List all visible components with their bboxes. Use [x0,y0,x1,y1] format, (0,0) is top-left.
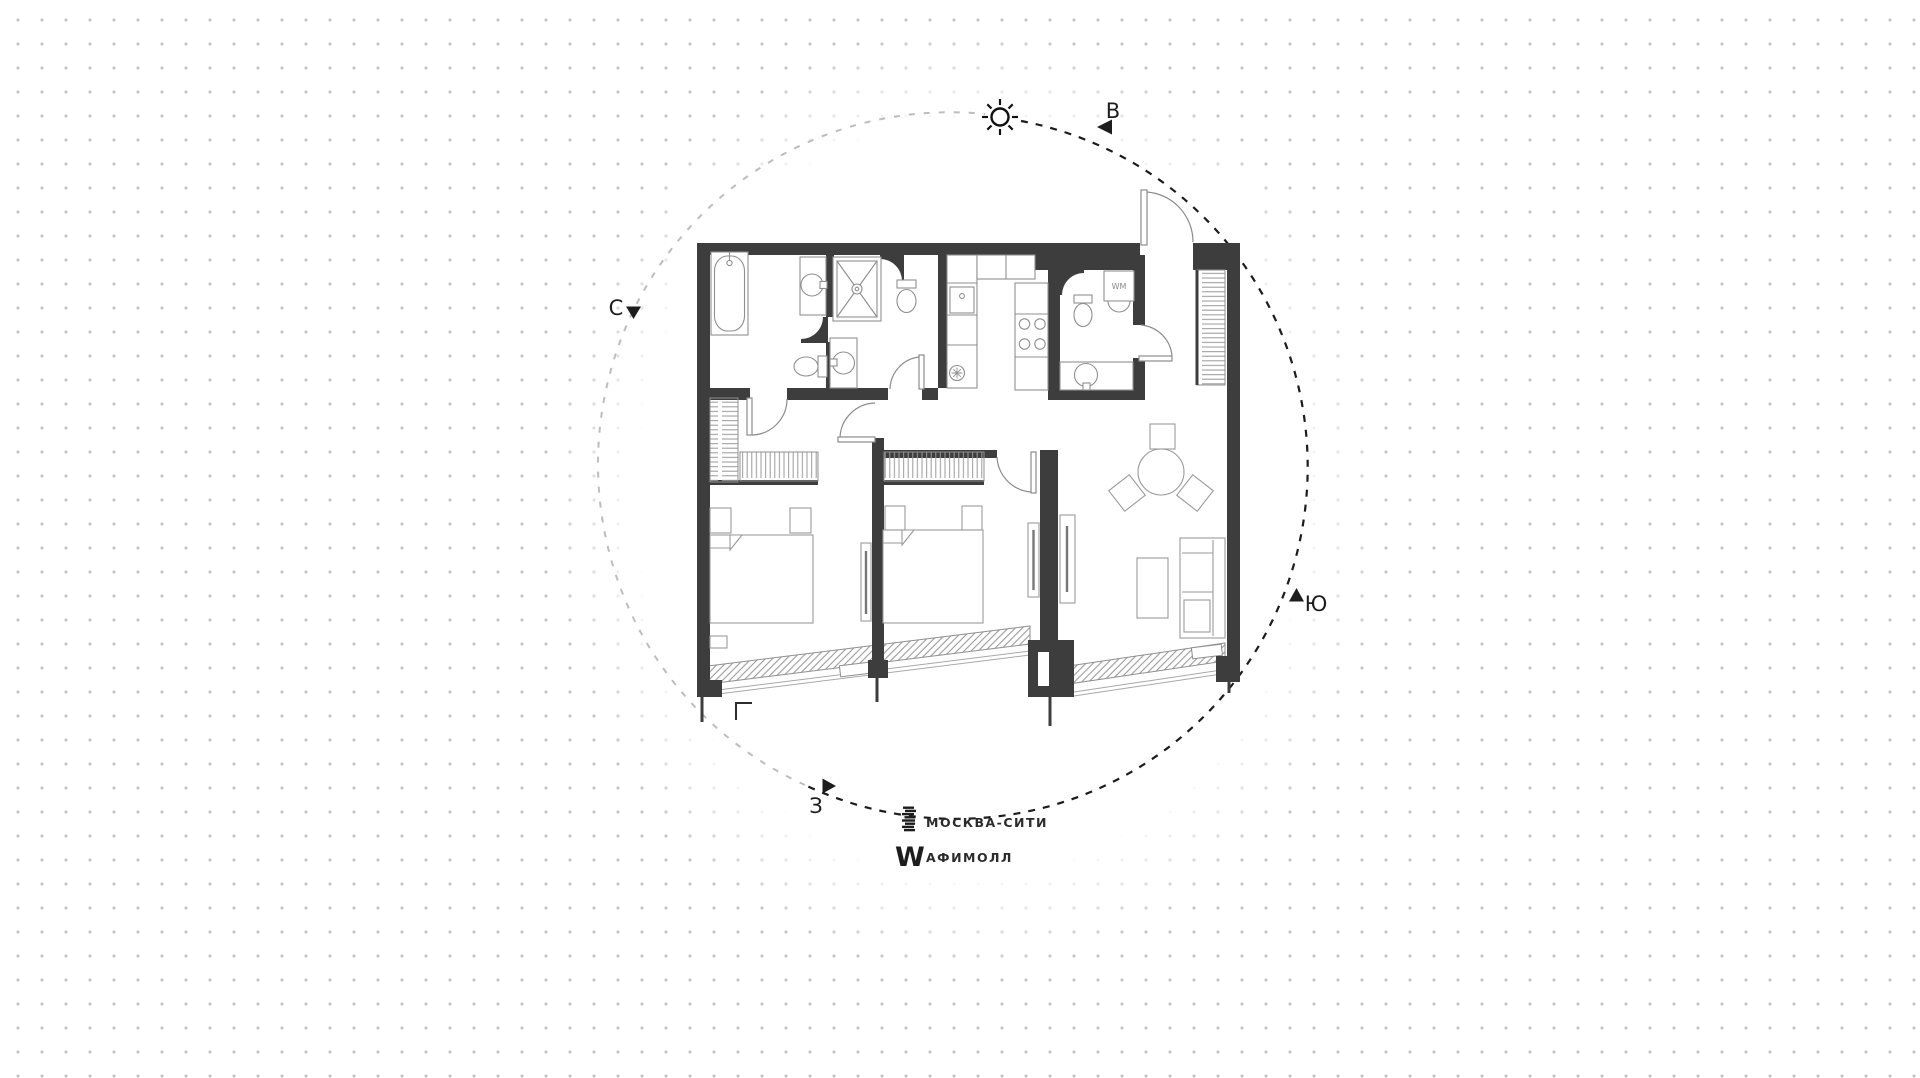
legend-label-afimall: АФИМОЛЛ [926,850,1013,865]
bedroom2-closet-band [884,452,984,481]
sink-3-faucet [1083,383,1090,390]
nightstand [962,506,982,530]
afimall-w-icon: W [895,842,925,873]
sink-2-faucet [830,359,837,366]
bedroom1-closet-column [710,398,738,482]
dining-chair [1150,424,1175,449]
stove-burner [1019,339,1029,349]
toilet-3-tank [1074,295,1092,303]
bathtub-faucet [727,260,732,265]
stove-burner [1035,339,1045,349]
washing-machine-label: WM [1112,282,1127,291]
toilet-1-tank [818,356,827,377]
sun-icon [982,99,1018,135]
entry-wardrobe [1197,270,1225,385]
bedroom1-closet-band [740,452,818,481]
dining-table [1138,449,1184,495]
floor-plan-drawing: В С Ю З [0,0,1920,1078]
kitchen-stove-unit [1015,283,1048,390]
compass-label-south: Ю [1305,592,1328,616]
compass-label-north: С [609,296,624,320]
bed-1-bench [710,636,727,648]
floor-plan-page: В С Ю З [0,0,1920,1078]
nightstand [885,506,905,530]
coffee-table [1137,558,1168,618]
compass-arrow-west [823,779,837,794]
toilet-3-bowl [1074,304,1092,327]
toilet-1-bowl [794,357,818,376]
compass-label-west: З [809,794,822,818]
moscow-city-tower-icon [902,807,916,832]
sink-1-faucet [820,282,827,289]
toilet-2-bowl [897,290,916,313]
sofa-chaise [1184,600,1210,632]
nightstand [790,508,811,533]
compass-arrow-north [626,307,641,320]
stove-burner [1019,319,1029,329]
compass-arrow-east [1097,120,1112,135]
living-wall-notch [1038,652,1049,686]
nightstand [710,508,731,533]
stove-burner [1035,319,1045,329]
compass-label-east: В [1106,99,1120,123]
bed-2 [883,530,983,623]
legend: МОСКВА-СИТИ W АФИМОЛЛ [895,807,1048,874]
legend-label-moscow-city: МОСКВА-СИТИ [926,815,1048,830]
toilet-2-tank [897,280,916,288]
compass-arrow-south [1289,588,1304,602]
kitchen-sink [950,287,974,313]
